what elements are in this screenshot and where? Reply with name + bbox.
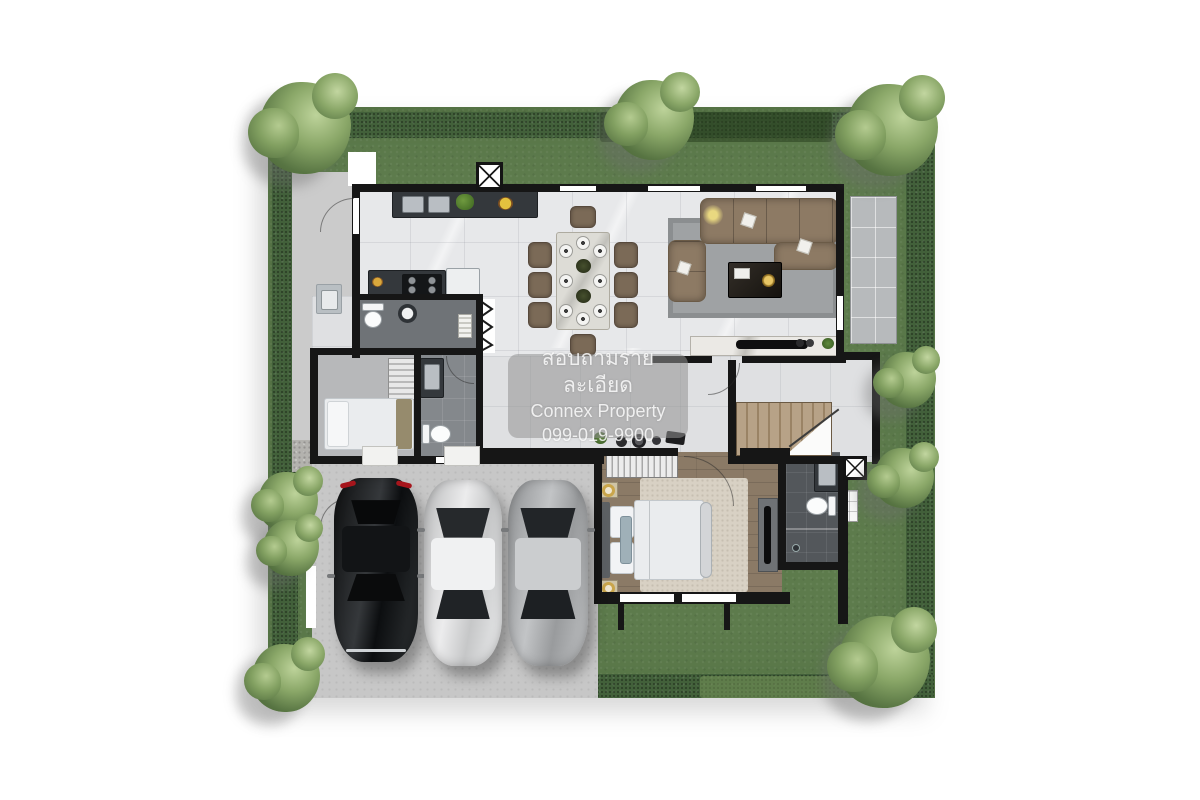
maid-bed-pillow (327, 401, 349, 447)
washing-machine (316, 284, 342, 314)
window-top (648, 186, 700, 191)
place-setting (559, 274, 573, 288)
bedroom-window (620, 594, 674, 602)
wall-bedroom-left (594, 448, 602, 604)
tree (263, 520, 319, 576)
accent-pillow (620, 516, 632, 564)
dining-chair (614, 242, 638, 268)
silver-sedan (424, 480, 502, 666)
maid-wardrobe (388, 358, 416, 400)
terrace (850, 196, 897, 344)
watermark-line-thai: สอบถามรายละเอียด (508, 345, 688, 400)
shaft-vent-bath (843, 456, 867, 480)
washer-lid (321, 290, 338, 310)
decor-canister (796, 339, 804, 347)
wall-right-upper (836, 184, 844, 360)
wall-left-lower (310, 348, 318, 464)
wall-foyer-bottom-left (482, 448, 678, 456)
kitchen-small-dish (372, 277, 383, 287)
fence-post (724, 604, 730, 630)
watermark-line-brand: Connex Property (530, 400, 665, 424)
table-centerpiece (576, 289, 591, 303)
watermark-line-phone: 099-019-9900 (542, 424, 654, 448)
tree (259, 82, 351, 174)
rear-window (431, 590, 495, 620)
wall-bath-bottom (778, 562, 846, 570)
floor-lamp (703, 205, 723, 225)
place-setting (576, 312, 590, 326)
maid-toilet-bowl (430, 425, 451, 443)
place-setting (576, 236, 590, 250)
kitchen-vegetables (456, 194, 474, 210)
bedroom-tv (764, 506, 771, 564)
place-setting (559, 244, 573, 258)
place-setting (593, 274, 607, 288)
side-mirror (501, 528, 509, 532)
side-mirror (417, 528, 425, 532)
place-setting (593, 304, 607, 318)
side-mirror (327, 574, 335, 578)
dining-chair (528, 302, 552, 328)
window-top (560, 186, 596, 191)
coffee-table-books (734, 268, 750, 279)
bedroom-window (682, 594, 736, 602)
wall-left-connector (310, 348, 482, 355)
watermark-badge: สอบถามรายละเอียด Connex Property 099-019… (508, 354, 688, 438)
tree (838, 616, 930, 708)
wall-tv-right (742, 356, 846, 363)
bed-duvet (634, 500, 704, 580)
welcome-doormat (458, 314, 472, 338)
floor-plan-canvas: สอบถามรายละเอียด Connex Property 099-019… (0, 0, 1200, 800)
wc-toilet-tank (362, 303, 384, 311)
car-roof (515, 538, 581, 590)
stove-cooktop (402, 274, 442, 296)
wc-round-basin (398, 304, 417, 323)
shaft-vent-top (476, 162, 503, 190)
rear-window (342, 500, 411, 524)
master-toilet-tank (828, 496, 836, 516)
wall-bath-right-fence (838, 456, 848, 624)
shower-drain (792, 544, 800, 552)
blanket-roll (700, 502, 712, 578)
rear-window (515, 590, 581, 620)
stepping-stone (444, 446, 480, 466)
wall-bed-bath-divider (778, 448, 786, 570)
master-toilet-bowl (806, 497, 828, 515)
windshield (431, 508, 495, 538)
car-roof (431, 538, 495, 590)
tree (880, 352, 936, 408)
wall-stair-bottom (728, 456, 840, 464)
table-centerpiece (576, 259, 591, 273)
shower-divider (786, 528, 840, 530)
garden-gate-top (348, 152, 376, 186)
fence-post (618, 604, 624, 630)
garden-gate-left (306, 566, 316, 628)
dining-chair (614, 302, 638, 328)
place-setting (593, 244, 607, 258)
windshield (515, 508, 581, 538)
gold-bowl (762, 274, 775, 287)
gray-sedan (508, 480, 588, 666)
wall-kitchen-bath-divider (352, 294, 482, 300)
kitchen-sink-right (428, 196, 450, 213)
wall-maid-bath-left (414, 352, 421, 462)
chrome-grille (346, 649, 406, 652)
bedside-lamp (602, 484, 615, 497)
dining-chair (570, 206, 596, 228)
black-sedan (334, 478, 418, 662)
maid-bath-sink (424, 364, 440, 390)
side-mirror (587, 528, 595, 532)
windshield (342, 574, 411, 602)
tree (252, 644, 320, 712)
master-bath-sink (818, 462, 836, 486)
window-top (756, 186, 806, 191)
place-setting (559, 304, 573, 318)
decor-plant (822, 338, 834, 349)
kitchen-food-dish (498, 197, 513, 210)
maid-bed-throw (396, 399, 412, 449)
stepping-stone (362, 446, 398, 466)
wall-east (872, 352, 880, 464)
dining-chair (614, 272, 638, 298)
tree (614, 80, 694, 160)
tree (846, 84, 938, 176)
wc-toilet-bowl (364, 311, 382, 328)
decor-canister (806, 339, 814, 347)
tree (874, 448, 934, 508)
dining-chair (528, 242, 552, 268)
kitchen-sink-left (402, 196, 424, 213)
dining-chair (528, 272, 552, 298)
wall-maid-bath-right (476, 294, 483, 462)
car-roof (342, 526, 411, 572)
maid-toilet-tank (422, 424, 430, 444)
window-right (837, 296, 843, 330)
